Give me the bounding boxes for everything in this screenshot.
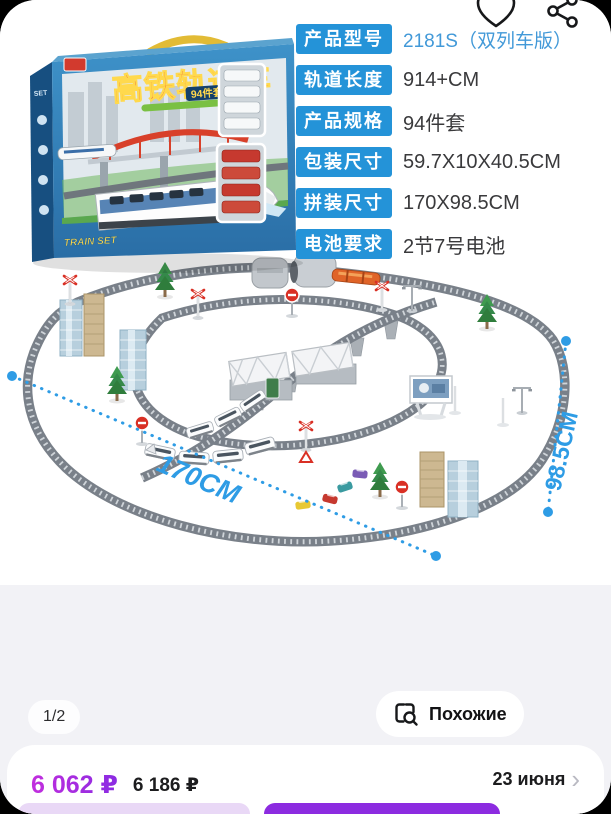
spec-value: 170X98.5CM	[403, 192, 520, 215]
share-button[interactable]	[544, 0, 582, 30]
spec-row-battery: 电池要求 2节7号电池	[296, 229, 608, 259]
heart-icon	[474, 0, 518, 34]
spec-value: 59.7X10X40.5CM	[403, 151, 561, 174]
spec-label: 产品规格	[296, 106, 392, 136]
orange-train	[332, 269, 381, 286]
favorite-button[interactable]	[474, 0, 518, 34]
spec-label: 包装尺寸	[296, 147, 392, 177]
spec-row-piece-count: 产品规格 94件套	[296, 106, 608, 136]
similar-button-label: Похожие	[429, 704, 507, 725]
billboard	[410, 376, 452, 420]
secondary-action-button-edge[interactable]	[18, 803, 250, 814]
chevron-right-icon: ›	[571, 770, 580, 788]
primary-action-button-edge[interactable]	[264, 803, 500, 814]
buildings-left	[60, 294, 146, 390]
search-similar-icon	[393, 701, 420, 728]
old-price: 6 186 ₽	[133, 774, 199, 797]
page-indicator: 1/2	[28, 700, 80, 734]
spec-row-track-length: 轨道长度 914+CM	[296, 65, 608, 95]
svg-text:SET: SET	[34, 90, 49, 98]
page-indicator-text: 1/2	[43, 708, 65, 726]
spec-row-assembled-size: 拼装尺寸 170X98.5CM	[296, 188, 608, 218]
spec-label: 产品型号	[296, 24, 392, 54]
similar-button[interactable]: Похожие	[376, 691, 524, 737]
product-photo-area[interactable]: 170CM 98.5CM SET	[0, 0, 611, 592]
spec-label: 拼装尺寸	[296, 188, 392, 218]
buildings-right	[420, 452, 478, 517]
spec-row-package-size: 包装尺寸 59.7X10X40.5CM	[296, 147, 608, 177]
spec-label: 轨道长度	[296, 65, 392, 95]
box-side-panels	[217, 64, 265, 222]
spec-value: 914+CM	[403, 69, 479, 92]
track-layout-illustration: 170CM 98.5CM	[7, 254, 583, 561]
current-price: 6 062 ₽	[31, 770, 118, 800]
spec-value: 2节7号电池	[403, 230, 505, 259]
delivery-date-row[interactable]: 23 июня ›	[492, 769, 580, 790]
spec-label: 电池要求	[296, 229, 392, 259]
delivery-date: 23 июня	[492, 769, 565, 790]
product-card-screen: 170CM 98.5CM SET	[0, 0, 611, 814]
spec-table: 产品型号 2181S（双列车版） 轨道长度 914+CM 产品规格 94件套 包…	[296, 24, 608, 259]
share-icon	[544, 0, 582, 30]
product-box: SET	[30, 38, 303, 273]
spec-value: 94件套	[403, 107, 465, 136]
bridge	[229, 342, 356, 400]
